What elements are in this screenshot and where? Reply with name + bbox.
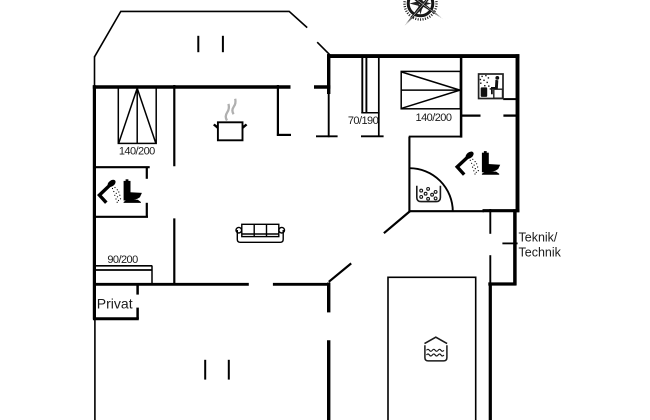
svg-text:140/200: 140/200: [119, 145, 155, 157]
svg-text:90/200: 90/200: [107, 254, 138, 266]
svg-text:Technik: Technik: [519, 245, 562, 259]
svg-text:Privat: Privat: [97, 295, 133, 311]
svg-text:Teknik/: Teknik/: [519, 231, 558, 245]
svg-text:70/190: 70/190: [348, 115, 379, 127]
svg-text:140/200: 140/200: [416, 112, 452, 124]
